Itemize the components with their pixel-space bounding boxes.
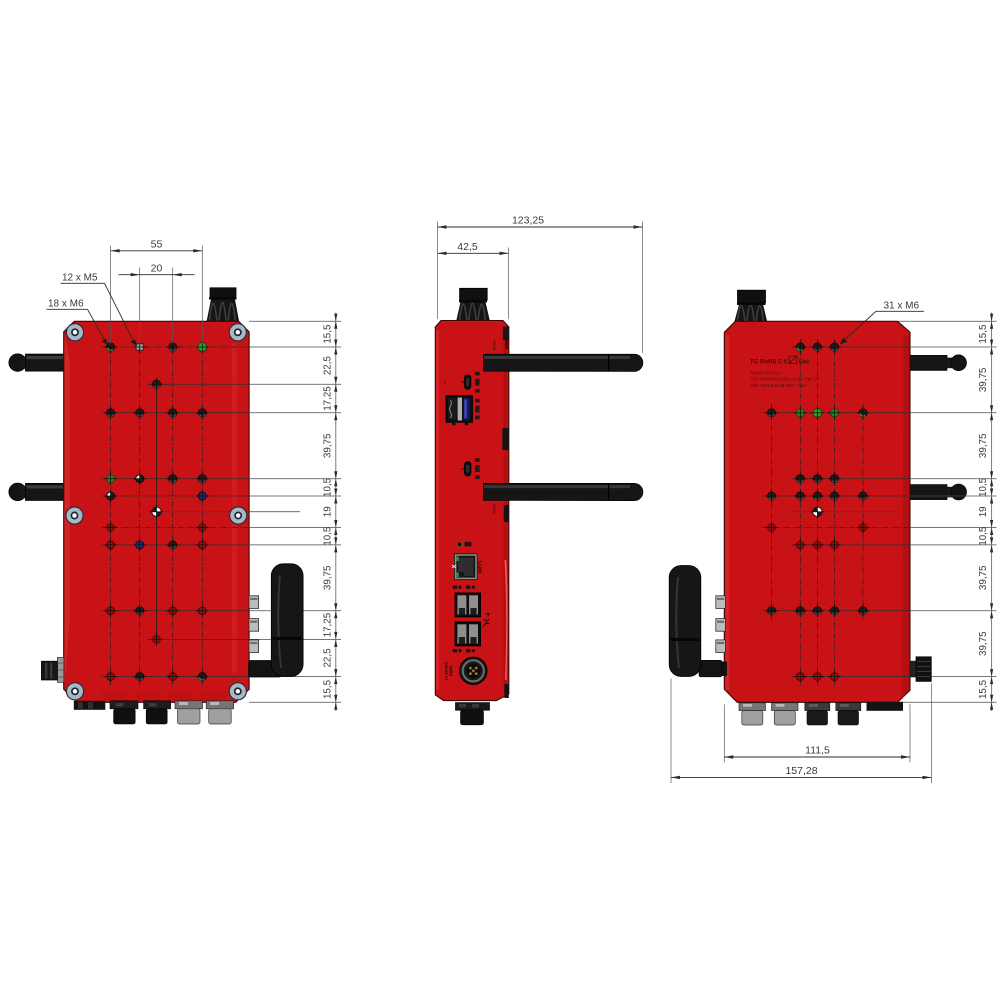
svg-text:123,25: 123,25 [512,215,544,227]
svg-text:MADE IN ITALY: MADE IN ITALY [751,370,782,375]
svg-text:20: 20 [151,263,163,275]
svg-text:RoHS C €: RoHS C € [760,360,788,366]
svg-text:39,75: 39,75 [978,631,989,656]
svg-text:15,5: 15,5 [323,324,334,344]
svg-text:39,75: 39,75 [323,565,334,590]
svg-text:22,5: 22,5 [323,648,334,668]
svg-text:10,5: 10,5 [978,526,989,546]
svg-text:WLAN: WLAN [493,340,497,351]
svg-text:157,28: 157,28 [785,765,817,777]
svg-text:39,75: 39,75 [978,367,989,392]
svg-text:10,5: 10,5 [978,477,989,497]
svg-text:H: H [443,380,447,383]
svg-text:39,75: 39,75 [323,433,334,458]
svg-text:18 x M6: 18 x M6 [48,299,84,310]
svg-text:S/N: 00113L2L08 MAC: xxxx: S/N: 00113L2L08 MAC: xxxx [751,383,808,388]
svg-text:17,25: 17,25 [323,612,334,637]
svg-text:PWR: PWR [448,665,453,676]
svg-text:19: 19 [978,506,989,517]
svg-text:10-36VDC: 10-36VDC [443,662,448,681]
svg-text:15,5: 15,5 [323,679,334,699]
svg-text:FC: FC [751,360,760,366]
svg-text:10,5: 10,5 [323,526,334,546]
svg-text:39,75: 39,75 [978,565,989,590]
svg-text:P/N: NB800 B02301.02-B0 HW 1.0: P/N: NB800 B02301.02-B0 HW 1.0 [751,377,820,382]
svg-text:39,75: 39,75 [978,433,989,458]
svg-text:55: 55 [151,239,163,251]
svg-text:42,5: 42,5 [457,241,478,253]
svg-text:19: 19 [323,506,334,517]
svg-text:15,5: 15,5 [978,324,989,344]
svg-text:12 x M5: 12 x M5 [62,273,98,284]
svg-text:15,5: 15,5 [978,679,989,699]
svg-text:31 x M6: 31 x M6 [884,301,920,312]
svg-text:17,25: 17,25 [323,386,334,411]
svg-text:10,5: 10,5 [323,477,334,497]
svg-text:22,5: 22,5 [323,356,334,376]
svg-text:INET1: INET1 [478,560,483,573]
svg-text:111,5: 111,5 [805,745,830,757]
svg-text:WLAN: WLAN [493,503,497,514]
